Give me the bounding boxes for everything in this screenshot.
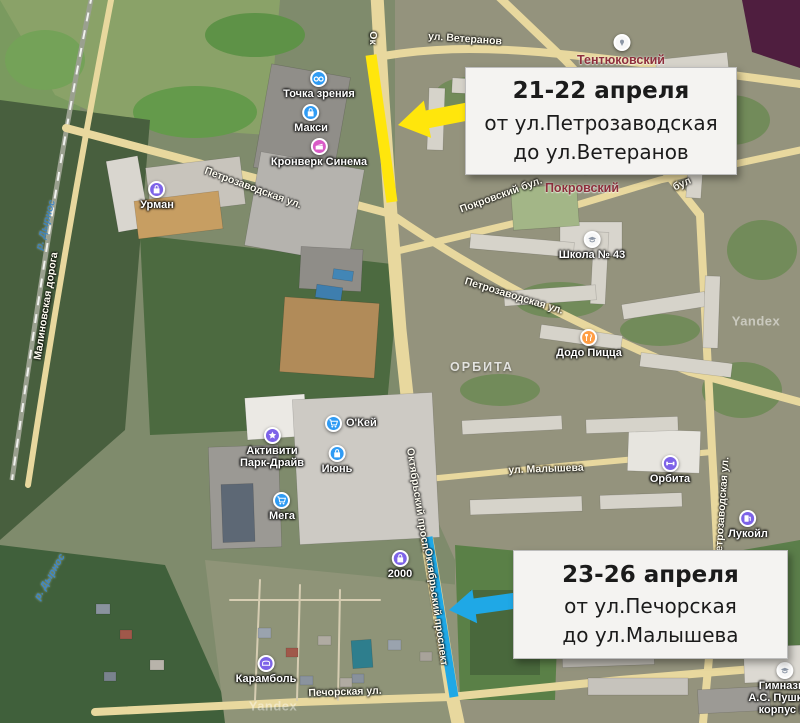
- poi-lukoil[interactable]: Лукойл: [728, 510, 768, 540]
- shopping-bag-icon: [303, 104, 320, 121]
- poi-aktiviti-park-drive[interactable]: Активити Парк-Драйв: [240, 427, 304, 469]
- callout-april-21-22: 21-22 апреля от ул.Петрозаводская до ул.…: [465, 67, 737, 175]
- callout-april-23-26: 23-26 апреля от ул.Печорская до ул.Малыш…: [513, 550, 788, 659]
- shopping-bag-icon: [391, 550, 408, 567]
- place-pin-icon: [614, 34, 631, 51]
- leisure-icon: [257, 655, 274, 672]
- school-icon: [777, 662, 794, 679]
- callout-line-to: до ул.Ветеранов: [513, 138, 688, 167]
- poi-dodo-pizza[interactable]: Додо Пицца: [556, 329, 622, 359]
- callout-line-from: от ул.Петрозаводская: [484, 109, 717, 138]
- poi-orbita[interactable]: Орбита: [650, 455, 690, 485]
- fuel-icon: [739, 510, 756, 527]
- poi-2000[interactable]: 2000: [388, 550, 412, 580]
- glasses-icon: [310, 70, 327, 87]
- poi-iyun[interactable]: Июнь: [322, 445, 353, 475]
- poi-mega[interactable]: Мега: [269, 492, 295, 522]
- area-label-orbita: ОРБИТА: [450, 360, 514, 374]
- poi-kronverk-cinema[interactable]: Кронверк Синема: [271, 138, 367, 168]
- shopping-cart-icon: [273, 492, 290, 509]
- yandex-watermark-bottom: Yandex: [249, 699, 298, 714]
- district-label-tentyukovsky: Тентюковский: [577, 53, 665, 67]
- poi-tentyukovsky-pin[interactable]: [614, 34, 631, 51]
- street-label-ok-fragment: Ок: [367, 31, 379, 44]
- satellite-map[interactable]: ул. Ветеранов Ок Петрозаводская ул. Покр…: [0, 0, 800, 723]
- street-label-pechorskaya: Печорская ул.: [308, 685, 382, 700]
- poi-karambol[interactable]: Карамболь: [236, 655, 297, 685]
- callout-title: 21-22 апреля: [513, 75, 690, 108]
- restaurant-icon: [581, 329, 598, 346]
- yandex-watermark-right: Yandex: [732, 314, 781, 329]
- shopping-bag-icon: [148, 181, 165, 198]
- fitness-icon: [662, 455, 679, 472]
- cinema-icon: [311, 138, 328, 155]
- shopping-cart-icon: [325, 415, 342, 432]
- callout-line-to: до ул.Малышева: [562, 621, 738, 650]
- poi-okey[interactable]: О'Кей: [325, 415, 377, 432]
- shopping-bag-icon: [329, 445, 346, 462]
- poi-maksi[interactable]: Макси: [294, 104, 328, 134]
- district-label-pokrovsky: Покровский: [545, 181, 619, 195]
- poi-urman[interactable]: Урман: [140, 181, 174, 211]
- poi-tochka-zreniya[interactable]: Точка зрения: [283, 70, 355, 100]
- school-icon: [583, 231, 600, 248]
- callout-title: 23-26 апреля: [562, 559, 739, 592]
- entertainment-icon: [263, 427, 280, 444]
- poi-gimnaziya-pushkina[interactable]: Гимназия А.С. Пушкина корпус №: [748, 662, 800, 716]
- callout-line-from: от ул.Печорская: [564, 592, 737, 621]
- poi-school-43[interactable]: Школа № 43: [559, 231, 626, 261]
